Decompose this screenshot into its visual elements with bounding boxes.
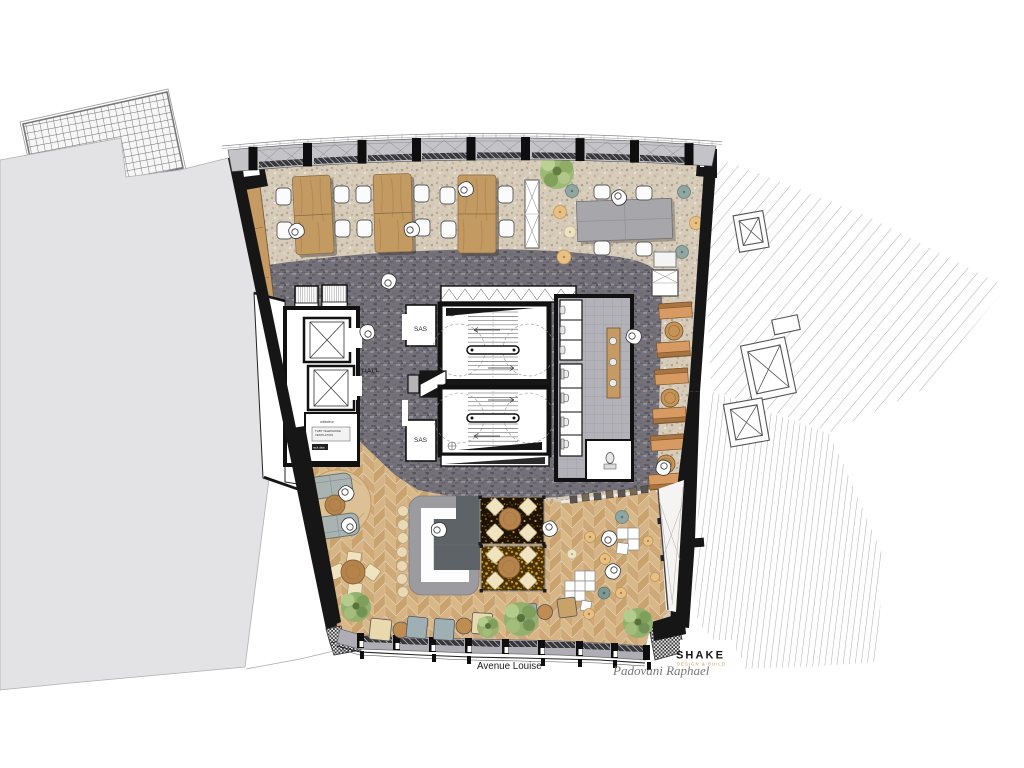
svg-text:SAS: SAS xyxy=(414,326,428,333)
svg-text:collecteur: collecteur xyxy=(320,420,335,424)
svg-text:SAS: SAS xyxy=(414,437,428,444)
svg-text:VENTILATION: VENTILATION xyxy=(315,433,333,437)
svg-text:Padovani Raphael: Padovani Raphael xyxy=(612,663,710,678)
svg-text:rack data: rack data xyxy=(313,446,325,450)
svg-text:SHAKE: SHAKE xyxy=(676,650,725,662)
svg-text:Avenue Louise: Avenue Louise xyxy=(477,661,542,672)
